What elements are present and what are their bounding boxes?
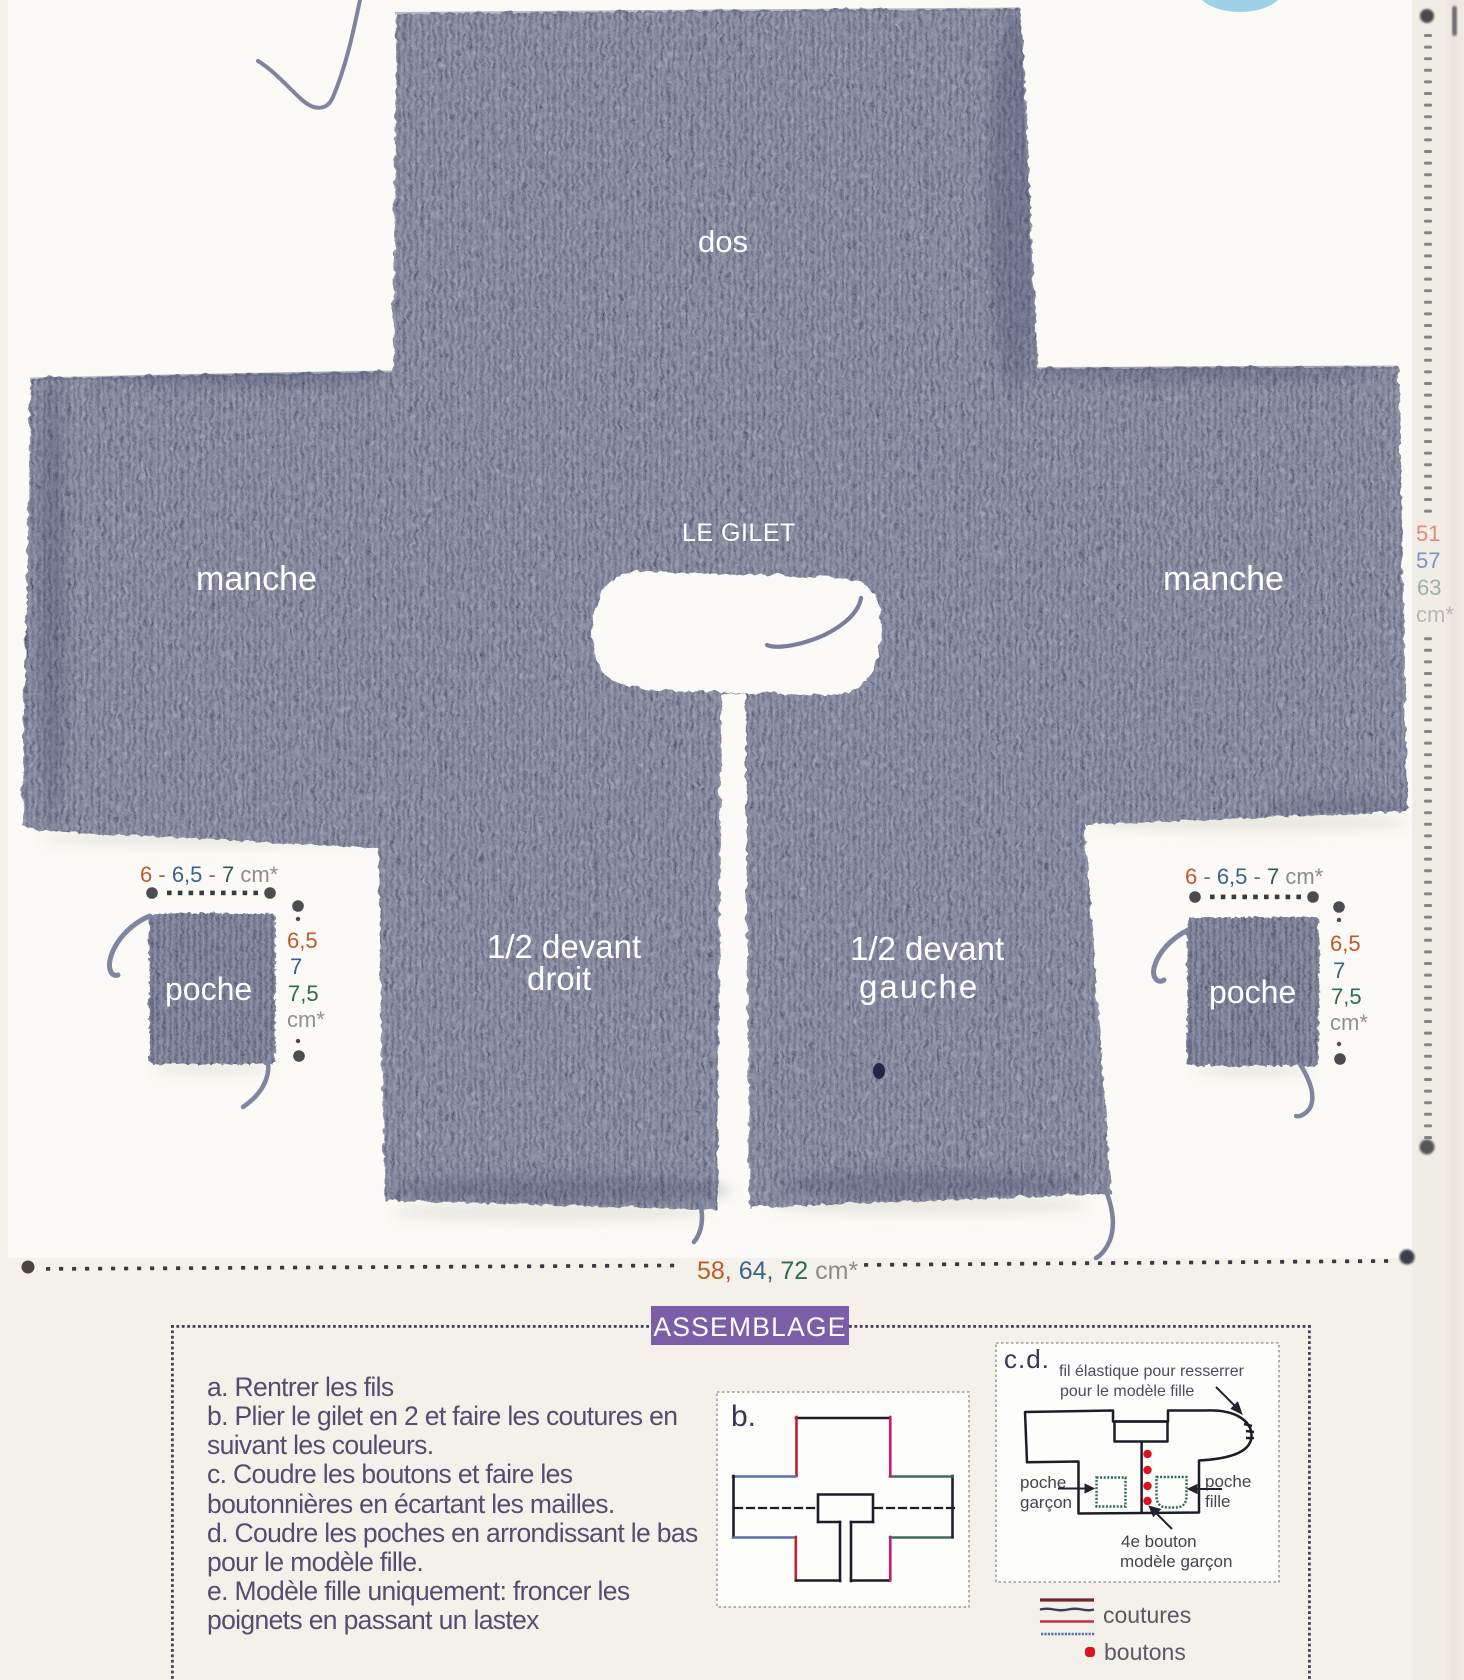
svg-text:b.: b.	[731, 1400, 756, 1433]
svg-text:6,5: 6,5	[1330, 931, 1361, 956]
svg-text:c. Coudre les boutons et faire: c. Coudre les boutons et faire les	[207, 1459, 573, 1489]
svg-text:droit: droit	[527, 960, 591, 997]
svg-text:d. Coudre les poches en arrond: d. Coudre les poches en arrondissant le …	[207, 1518, 698, 1548]
svg-text:63: 63	[1417, 575, 1441, 600]
svg-text:4e bouton: 4e bouton	[1121, 1532, 1197, 1551]
svg-text:cm*: cm*	[287, 1007, 325, 1032]
svg-text:7,5: 7,5	[1331, 984, 1362, 1009]
svg-text:LE GILET: LE GILET	[682, 519, 796, 547]
svg-text:manche: manche	[196, 560, 317, 598]
svg-text:6,5: 6,5	[287, 928, 318, 953]
svg-text:cm*: cm*	[1416, 602, 1454, 627]
svg-text:e. Modèle fille uniquement: fr: e. Modèle fille uniquement: froncer les	[207, 1576, 630, 1606]
svg-text:poche: poche	[165, 971, 252, 1007]
svg-text:6 - 6,5 - 7 cm*: 6 - 6,5 - 7 cm*	[140, 862, 279, 887]
svg-text:cm*: cm*	[1330, 1010, 1368, 1035]
svg-text:dos: dos	[698, 224, 748, 259]
svg-text:c.d.: c.d.	[1004, 1344, 1050, 1374]
svg-text:pour le modèle fille.: pour le modèle fille.	[207, 1547, 423, 1577]
svg-text:1/2 devant: 1/2 devant	[850, 930, 1004, 967]
svg-text:poche: poche	[1209, 974, 1296, 1010]
svg-text:manche: manche	[1163, 560, 1284, 598]
svg-text:b. Plier le gilet en 2 et fair: b. Plier le gilet en 2 et faire les cout…	[207, 1401, 677, 1431]
svg-text:57: 57	[1416, 548, 1440, 573]
svg-text:gauche: gauche	[859, 968, 979, 1005]
svg-text:7: 7	[1333, 958, 1345, 983]
svg-text:fille: fille	[1205, 1492, 1231, 1511]
svg-text:coutures: coutures	[1103, 1602, 1191, 1628]
svg-text:51: 51	[1416, 521, 1440, 546]
svg-text:suivant les couleurs.: suivant les couleurs.	[207, 1430, 433, 1460]
svg-text:a. Rentrer les fils: a. Rentrer les fils	[207, 1372, 394, 1402]
svg-text:7,5: 7,5	[288, 981, 319, 1006]
svg-text:modèle garçon: modèle garçon	[1120, 1552, 1232, 1571]
svg-text:boutons: boutons	[1104, 1639, 1186, 1665]
svg-text:poignets en passant un lastex: poignets en passant un lastex	[207, 1605, 539, 1635]
svg-text:garçon: garçon	[1020, 1493, 1072, 1512]
svg-text:boutonnières en écartant les m: boutonnières en écartant les mailles.	[207, 1489, 615, 1519]
svg-text:58, 64, 72 cm*: 58, 64, 72 cm*	[697, 1257, 858, 1285]
svg-text:pour le modèle fille: pour le modèle fille	[1060, 1383, 1194, 1400]
svg-text:7: 7	[290, 954, 302, 979]
svg-text:ASSEMBLAGE: ASSEMBLAGE	[653, 1312, 846, 1342]
svg-text:6 - 6,5 - 7 cm*: 6 - 6,5 - 7 cm*	[1185, 864, 1324, 889]
svg-text:fil élastique pour resserrer: fil élastique pour resserrer	[1059, 1363, 1245, 1380]
